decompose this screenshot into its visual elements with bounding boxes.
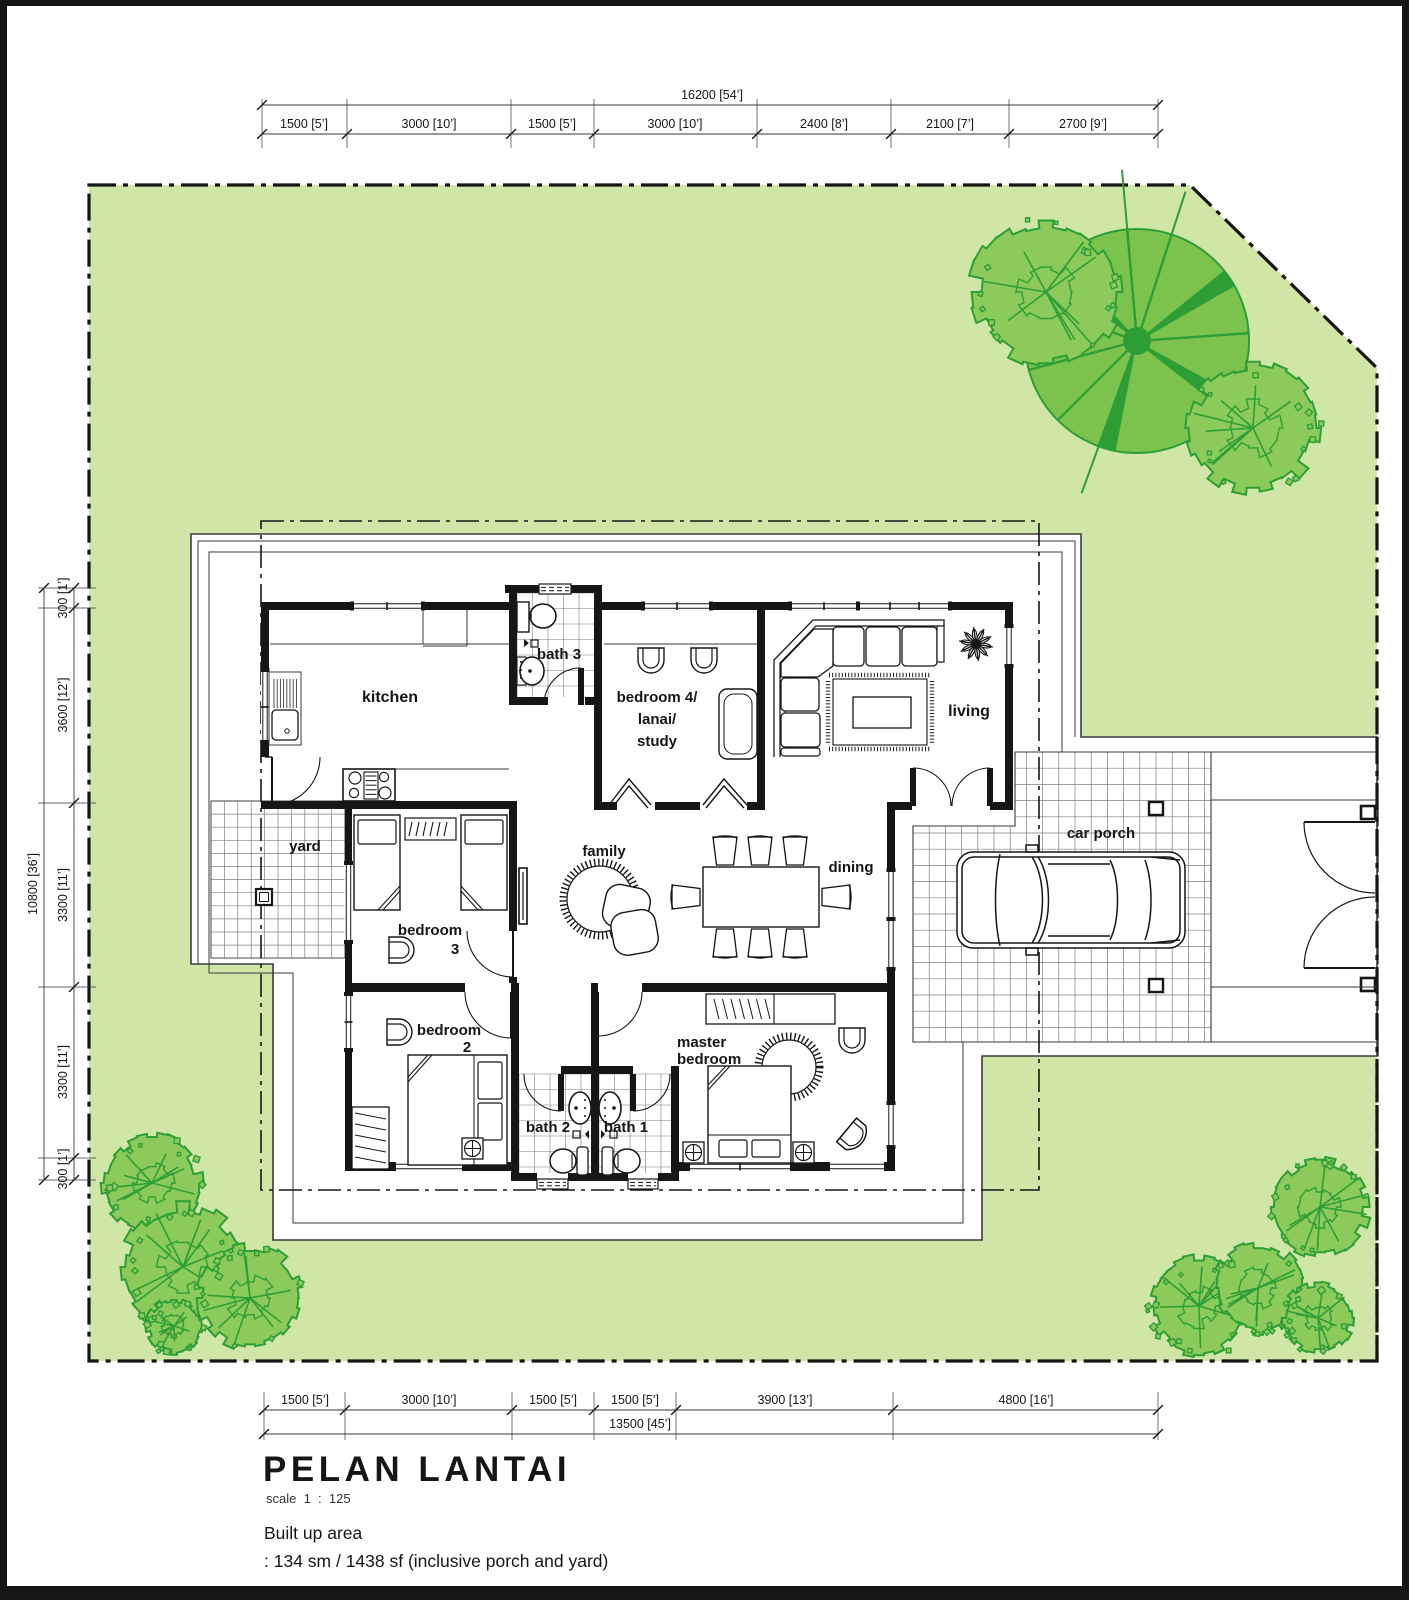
svg-text:10800 [36’]: 10800 [36’] bbox=[26, 853, 40, 915]
svg-text:bedroom 4/: bedroom 4/ bbox=[617, 689, 699, 706]
svg-text:1500 [5’]: 1500 [5’] bbox=[281, 1393, 329, 1407]
svg-text:2400 [8’]: 2400 [8’] bbox=[800, 117, 848, 131]
svg-text:3900 [13’]: 3900 [13’] bbox=[758, 1393, 813, 1407]
svg-text:bath 1: bath 1 bbox=[604, 1119, 648, 1136]
svg-text:master: master bbox=[677, 1034, 726, 1051]
svg-text:16200 [54’]: 16200 [54’] bbox=[681, 88, 743, 102]
svg-text:kitchen: kitchen bbox=[362, 689, 418, 706]
svg-text:bath 3: bath 3 bbox=[537, 646, 581, 663]
svg-text:300 [1’]: 300 [1’] bbox=[56, 1148, 70, 1189]
svg-text:car porch: car porch bbox=[1067, 825, 1135, 842]
svg-text:living: living bbox=[948, 703, 990, 720]
svg-text:bath 2: bath 2 bbox=[526, 1119, 570, 1136]
svg-text:2700 [9’]: 2700 [9’] bbox=[1059, 117, 1107, 131]
svg-text:4800 [16’]: 4800 [16’] bbox=[999, 1393, 1054, 1407]
svg-text:1500 [5’]: 1500 [5’] bbox=[529, 1393, 577, 1407]
svg-text:family: family bbox=[582, 843, 626, 860]
svg-text:3300 [11’]: 3300 [11’] bbox=[56, 868, 70, 922]
svg-text:bedroom: bedroom bbox=[677, 1051, 741, 1068]
svg-text:PELAN LANTAI: PELAN LANTAI bbox=[263, 1450, 571, 1489]
svg-text:3000 [10’]: 3000 [10’] bbox=[648, 117, 703, 131]
svg-text:scale 1 : 125: scale 1 : 125 bbox=[266, 1491, 351, 1506]
svg-text:Built up area: Built up area bbox=[264, 1523, 363, 1543]
svg-text:dining: dining bbox=[829, 859, 874, 876]
svg-text:3600 [12’]: 3600 [12’] bbox=[56, 678, 70, 733]
svg-text:3000 [10’]: 3000 [10’] bbox=[402, 1393, 457, 1407]
svg-text:3300 [11’]: 3300 [11’] bbox=[56, 1045, 70, 1099]
svg-text:bedroom: bedroom bbox=[417, 1022, 481, 1039]
svg-text:1500 [5’]: 1500 [5’] bbox=[528, 117, 576, 131]
svg-text:3000 [10’]: 3000 [10’] bbox=[402, 117, 457, 131]
svg-text:lanai/: lanai/ bbox=[638, 711, 677, 728]
svg-text:2100 [7’]: 2100 [7’] bbox=[926, 117, 974, 131]
svg-text:1500 [5’]: 1500 [5’] bbox=[611, 1393, 659, 1407]
svg-text:300 [1’]: 300 [1’] bbox=[56, 577, 70, 618]
svg-text:: 134 sm / 1438 sf (inclusive: : 134 sm / 1438 sf (inclusive porch and … bbox=[264, 1551, 608, 1571]
svg-text:yard: yard bbox=[289, 838, 321, 855]
svg-text:13500 [45’]: 13500 [45’] bbox=[609, 1417, 671, 1431]
svg-text:3: 3 bbox=[451, 941, 459, 958]
svg-text:1500 [5’]: 1500 [5’] bbox=[280, 117, 328, 131]
svg-text:2: 2 bbox=[463, 1039, 471, 1056]
svg-text:bedroom: bedroom bbox=[398, 922, 462, 939]
svg-text:study: study bbox=[637, 733, 678, 750]
